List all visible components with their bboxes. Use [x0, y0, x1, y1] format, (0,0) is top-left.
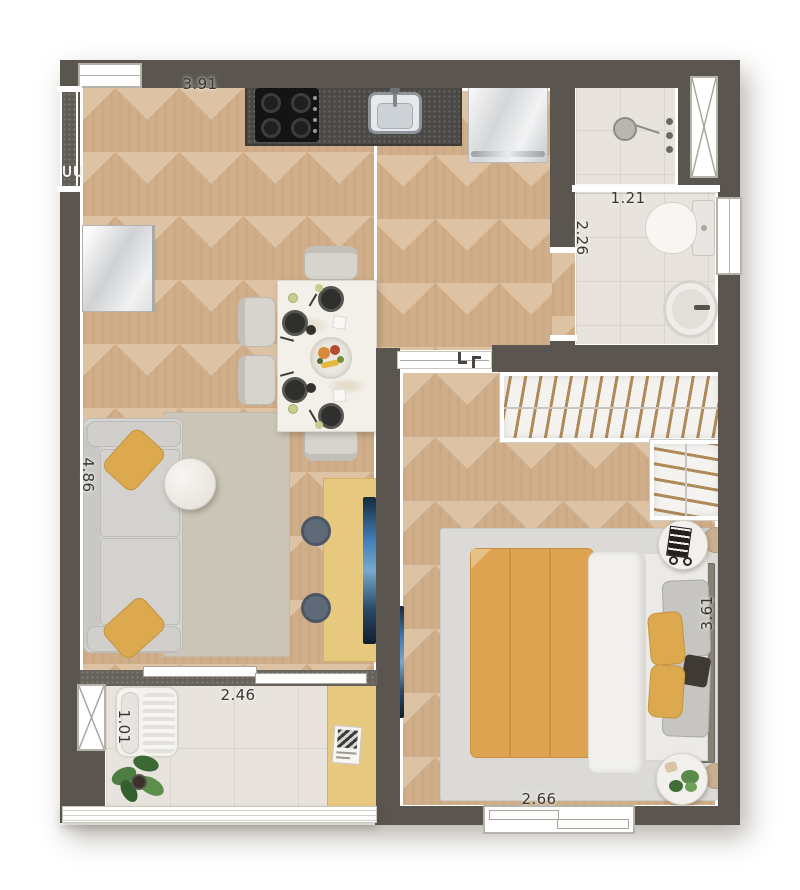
apartment-floor-plan: 3.91 1.21 2.26 4.86 2.46 1.01 3.61 2.66 — [0, 0, 800, 890]
cooktop-knob — [313, 118, 317, 122]
entry-door-jamb — [57, 186, 82, 192]
coffee-table — [164, 458, 216, 510]
cutlery-icon — [309, 409, 318, 422]
balcony-railing — [62, 806, 377, 823]
cup — [306, 383, 316, 393]
plate — [282, 377, 308, 403]
refrigerator — [468, 80, 548, 163]
closet-top — [500, 372, 723, 442]
duvet-fold — [471, 549, 491, 569]
wall-bedroom-top — [492, 345, 740, 372]
fruit — [330, 345, 340, 355]
nightstand-bottom — [656, 753, 708, 805]
plant-leaf — [669, 780, 683, 792]
dim-kitchen-width: 3.91 — [183, 75, 218, 93]
bed-pillow-yellow — [647, 664, 686, 719]
door-handle-icon — [74, 166, 82, 177]
entry-sideboard — [82, 225, 155, 312]
magazine-text-line — [336, 756, 350, 759]
door-jamb — [550, 335, 577, 341]
burner — [291, 118, 311, 138]
magazine-text-line — [336, 751, 356, 754]
lime — [288, 404, 298, 414]
plant-pot — [131, 774, 147, 790]
dim-bedroom-depth: 3.61 — [698, 596, 716, 631]
wall-top — [60, 60, 740, 88]
cooktop — [255, 88, 319, 142]
closet-rail — [685, 444, 687, 516]
wall-living-bedroom — [376, 348, 400, 823]
dining-chair-left-1 — [238, 297, 276, 347]
dining-chair-left-2 — [238, 355, 276, 405]
plate — [282, 310, 308, 336]
plant-leaf — [685, 782, 697, 792]
shower-knob — [666, 146, 673, 153]
kitchen-sink — [368, 92, 422, 134]
magazine — [332, 725, 363, 765]
nightstand-top — [658, 520, 708, 570]
balcony-sliding-door — [143, 666, 257, 677]
decor-item — [664, 761, 678, 774]
lime — [288, 293, 298, 303]
door-hook-icon — [458, 352, 467, 364]
lime — [315, 284, 323, 292]
window-pane — [557, 819, 629, 829]
shower-head-icon — [613, 117, 637, 141]
window-bedroom — [483, 805, 635, 834]
glasses-icon — [683, 557, 692, 566]
balcony-sliding-door — [255, 673, 367, 684]
dark-throw — [681, 654, 712, 688]
shower-partition — [572, 185, 720, 192]
dim-bedroom-width: 2.66 — [522, 790, 557, 808]
closet-rail — [504, 407, 719, 409]
bed-sheet — [588, 551, 646, 774]
book — [666, 526, 692, 559]
napkin — [332, 315, 347, 330]
burner — [261, 118, 281, 138]
lounge-chair-slats — [143, 693, 175, 753]
cutlery-icon — [280, 371, 294, 377]
wall-right — [718, 60, 740, 825]
grape — [337, 356, 344, 363]
napkin — [332, 388, 346, 402]
dim-bath-width: 1.21 — [611, 189, 646, 207]
shaft-x-top — [690, 76, 718, 178]
shaft-x-balcony — [77, 684, 106, 751]
toilet-flush-button — [701, 225, 707, 231]
burner — [291, 93, 311, 113]
cutlery-icon — [309, 293, 318, 306]
fruit-bowl — [310, 337, 352, 379]
bed-duvet — [470, 548, 594, 758]
door-hook-icon — [472, 356, 481, 368]
window-frame-line — [80, 75, 140, 76]
cutlery-icon — [280, 336, 294, 342]
shower-knob — [666, 118, 673, 125]
cooktop-knob — [313, 129, 317, 133]
window-top — [78, 63, 142, 88]
dining-chair-bottom — [304, 427, 358, 461]
refrigerator-handle — [471, 151, 545, 157]
tv-living — [363, 497, 376, 644]
toilet-bowl — [645, 202, 697, 254]
bathroom-sink — [663, 280, 718, 338]
glasses-icon — [669, 556, 678, 565]
window-frame-line — [729, 199, 730, 273]
dim-balcony-depth: 1.01 — [115, 710, 133, 745]
closet-right — [650, 440, 723, 520]
cup — [306, 325, 316, 335]
window-bathroom — [716, 197, 742, 275]
sink-faucet-icon — [694, 305, 710, 310]
sofa — [83, 418, 183, 653]
desk-stool — [301, 516, 331, 546]
grape — [317, 358, 323, 364]
dim-living-depth: 4.86 — [79, 458, 97, 493]
magazine-cover — [337, 729, 358, 748]
shower-knob — [666, 132, 673, 139]
bathroom-door-opening — [552, 252, 575, 336]
wall-kitchen-bath-upper — [550, 88, 575, 252]
burner — [261, 93, 281, 113]
desk-stool — [301, 593, 331, 623]
cooktop-knob — [313, 107, 317, 111]
dim-bath-depth: 2.26 — [573, 221, 591, 256]
bed-pillow-yellow — [647, 611, 686, 667]
toilet — [645, 200, 715, 256]
dim-balcony-width: 2.46 — [221, 686, 256, 704]
balcony-plant — [103, 750, 173, 810]
window-pane — [489, 810, 559, 820]
dining-table — [277, 280, 377, 432]
dining-chair-top — [304, 246, 358, 280]
cooktop-knob — [313, 96, 317, 100]
door-handle-icon — [63, 166, 71, 177]
wall-balcony-stub — [77, 750, 105, 807]
